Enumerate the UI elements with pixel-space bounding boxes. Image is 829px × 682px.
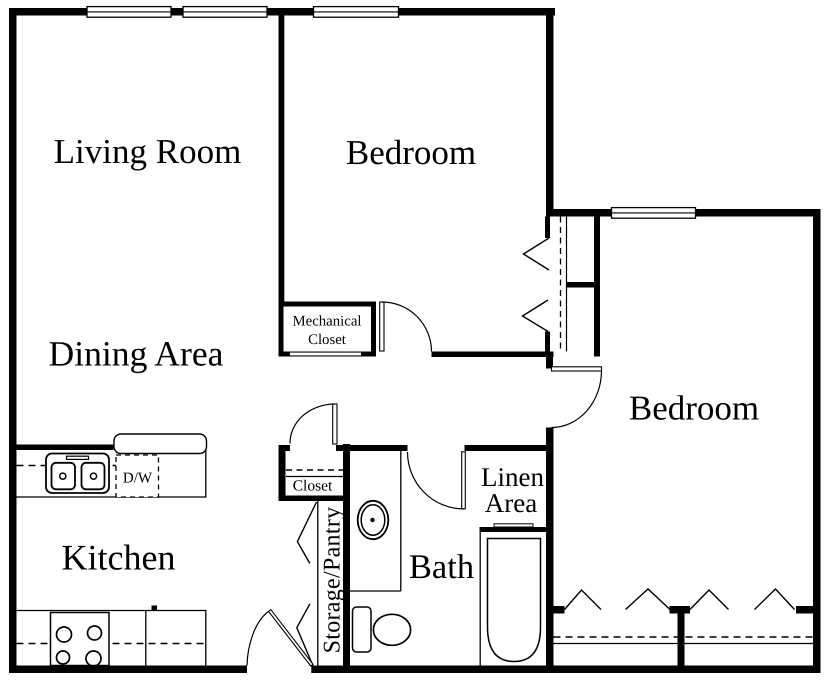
svg-text:D/W: D/W	[123, 471, 153, 487]
svg-text:Area: Area	[485, 488, 537, 518]
svg-text:Bedroom: Bedroom	[346, 133, 476, 172]
svg-text:Storage/Pantry: Storage/Pantry	[320, 507, 346, 654]
svg-text:Closet: Closet	[293, 478, 333, 495]
svg-text:Bath: Bath	[409, 548, 474, 586]
svg-text:Dining Area: Dining Area	[49, 334, 224, 374]
svg-text:Living Room: Living Room	[54, 132, 242, 171]
svg-text:Bedroom: Bedroom	[629, 389, 759, 428]
svg-text:Kitchen: Kitchen	[62, 538, 176, 578]
svg-text:Mechanical: Mechanical	[292, 314, 361, 330]
svg-text:Closet: Closet	[308, 332, 347, 348]
